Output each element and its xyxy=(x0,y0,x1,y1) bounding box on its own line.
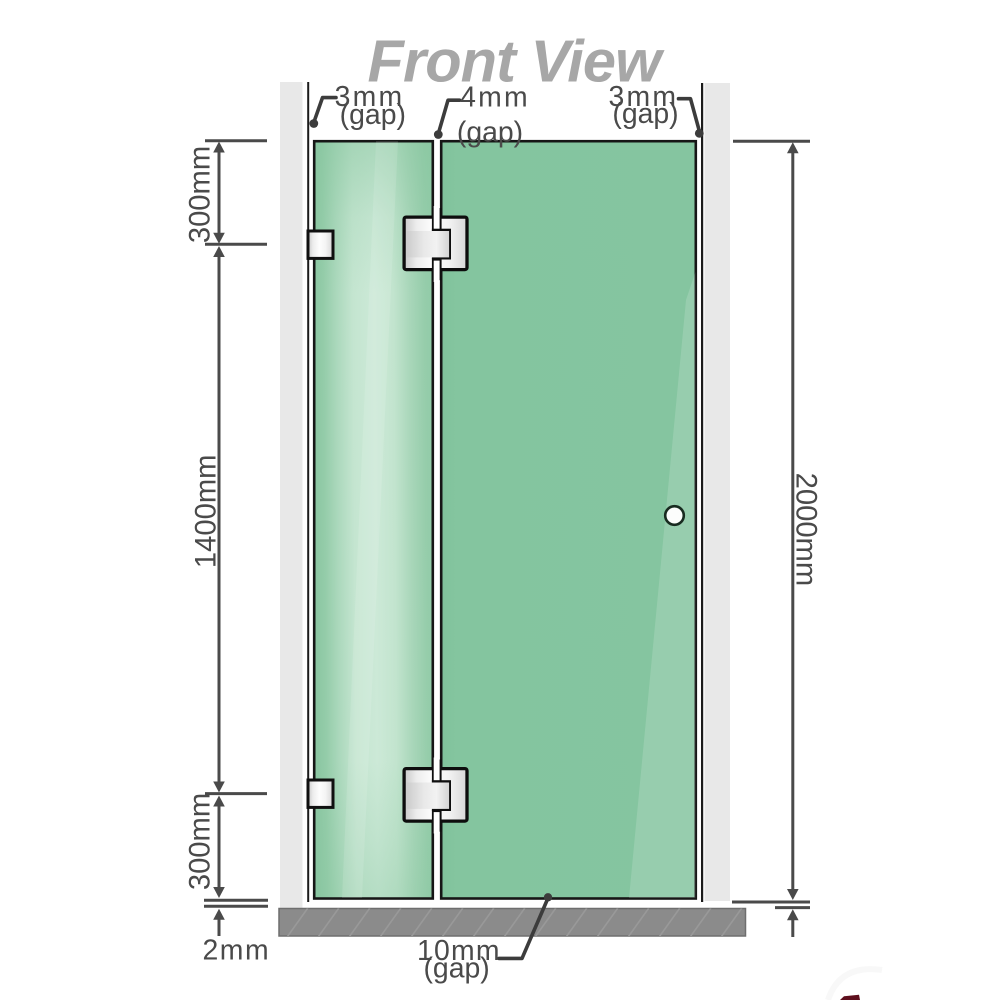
svg-text:2mm: 2mm xyxy=(203,935,271,967)
svg-text:(gap): (gap) xyxy=(612,98,678,130)
svg-text:2000mm: 2000mm xyxy=(789,473,821,587)
svg-text:(gap): (gap) xyxy=(340,99,406,131)
svg-text:300mm: 300mm xyxy=(184,146,216,243)
svg-text:300mm: 300mm xyxy=(184,793,216,890)
svg-text:1400mm: 1400mm xyxy=(191,455,223,569)
svg-text:4mm: 4mm xyxy=(460,82,530,114)
svg-text:(gap): (gap) xyxy=(457,116,523,148)
svg-text:(gap): (gap) xyxy=(423,953,489,985)
